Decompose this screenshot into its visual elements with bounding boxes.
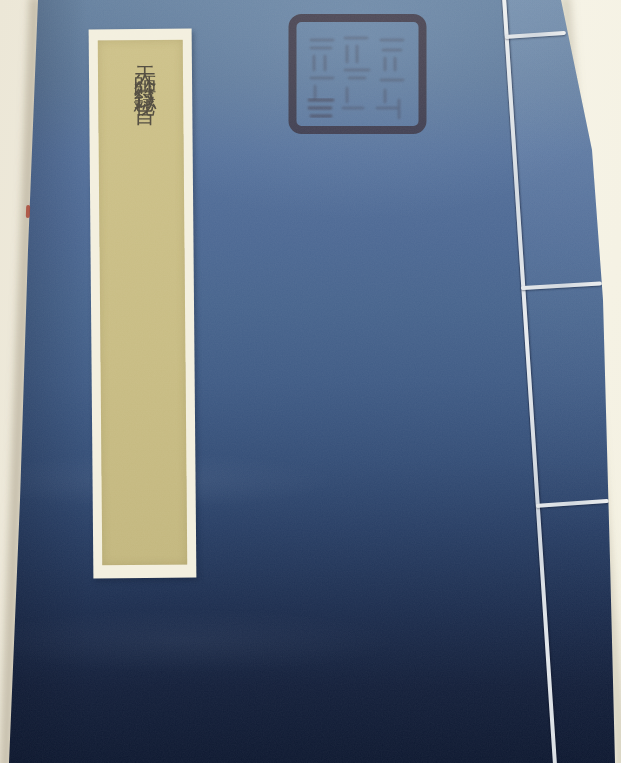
title-text: 天師符籙秘旨 — [133, 48, 156, 90]
red-fiber-speck — [26, 205, 30, 218]
seal-script-marks — [311, 38, 403, 118]
title-label: 天師符籙秘旨 — [89, 29, 197, 579]
seal-border — [293, 18, 423, 130]
title-label-paper: 天師符籙秘旨 — [98, 40, 188, 566]
seal-stamp — [287, 12, 429, 139]
seal-script-marks-strong — [309, 100, 333, 116]
photo: 天師符籙秘旨 — [0, 0, 621, 763]
book-cover: 天師符籙秘旨 — [0, 0, 621, 763]
